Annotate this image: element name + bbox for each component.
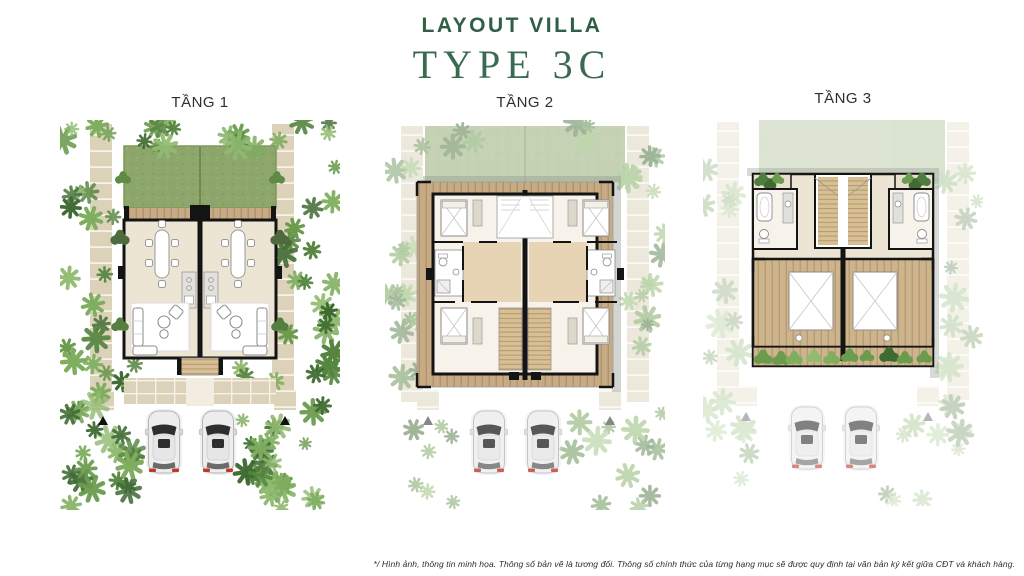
stairs bbox=[499, 308, 522, 370]
floor-column-3: TẦNG 3 bbox=[703, 90, 983, 506]
parked-cars-3 bbox=[788, 405, 880, 471]
floor-plan-tang-2 bbox=[385, 120, 665, 510]
bed bbox=[441, 200, 467, 236]
hallway bbox=[463, 242, 521, 302]
bed bbox=[441, 308, 467, 344]
car-icon bbox=[145, 409, 183, 475]
car-icon bbox=[470, 409, 508, 475]
floor-plan-tang-3 bbox=[703, 116, 983, 506]
page-header: LAYOUT VILLA TYPE 3C bbox=[0, 14, 1024, 88]
villa-building-3 bbox=[753, 172, 933, 366]
parked-cars-1 bbox=[145, 409, 237, 475]
floor-plan-tang-1 bbox=[60, 120, 340, 510]
floor-1-label: TẦNG 1 bbox=[60, 94, 340, 111]
entry-stairs bbox=[181, 358, 219, 375]
sofa bbox=[133, 308, 143, 346]
layout-villa-page: { "header": { "title": "LAYOUT VILLA", "… bbox=[0, 0, 1024, 576]
floor-column-2: TẦNG 2 bbox=[385, 94, 665, 510]
party-wall bbox=[841, 248, 846, 361]
villa-building-1 bbox=[110, 205, 289, 406]
car-icon bbox=[199, 409, 237, 475]
parked-cars-2 bbox=[470, 409, 562, 475]
floor-column-1: TẦNG 1 bbox=[60, 94, 340, 510]
disclaimer-text: */ Hình ảnh, thông tin minh họa. Thông s… bbox=[374, 559, 1016, 569]
car-icon bbox=[842, 405, 880, 471]
page-title: LAYOUT VILLA bbox=[0, 14, 1024, 38]
car-icon bbox=[788, 405, 826, 471]
car-icon bbox=[524, 409, 562, 475]
master-bed bbox=[789, 272, 833, 330]
master-bed bbox=[853, 272, 897, 330]
party-wall bbox=[198, 206, 203, 374]
floor-2-label: TẦNG 2 bbox=[385, 94, 665, 111]
floor-3-label: TẦNG 3 bbox=[703, 90, 983, 107]
stairwell-void bbox=[497, 196, 553, 238]
villa-building-2 bbox=[417, 182, 624, 387]
villa-type-subtitle: TYPE 3C bbox=[0, 41, 1024, 88]
